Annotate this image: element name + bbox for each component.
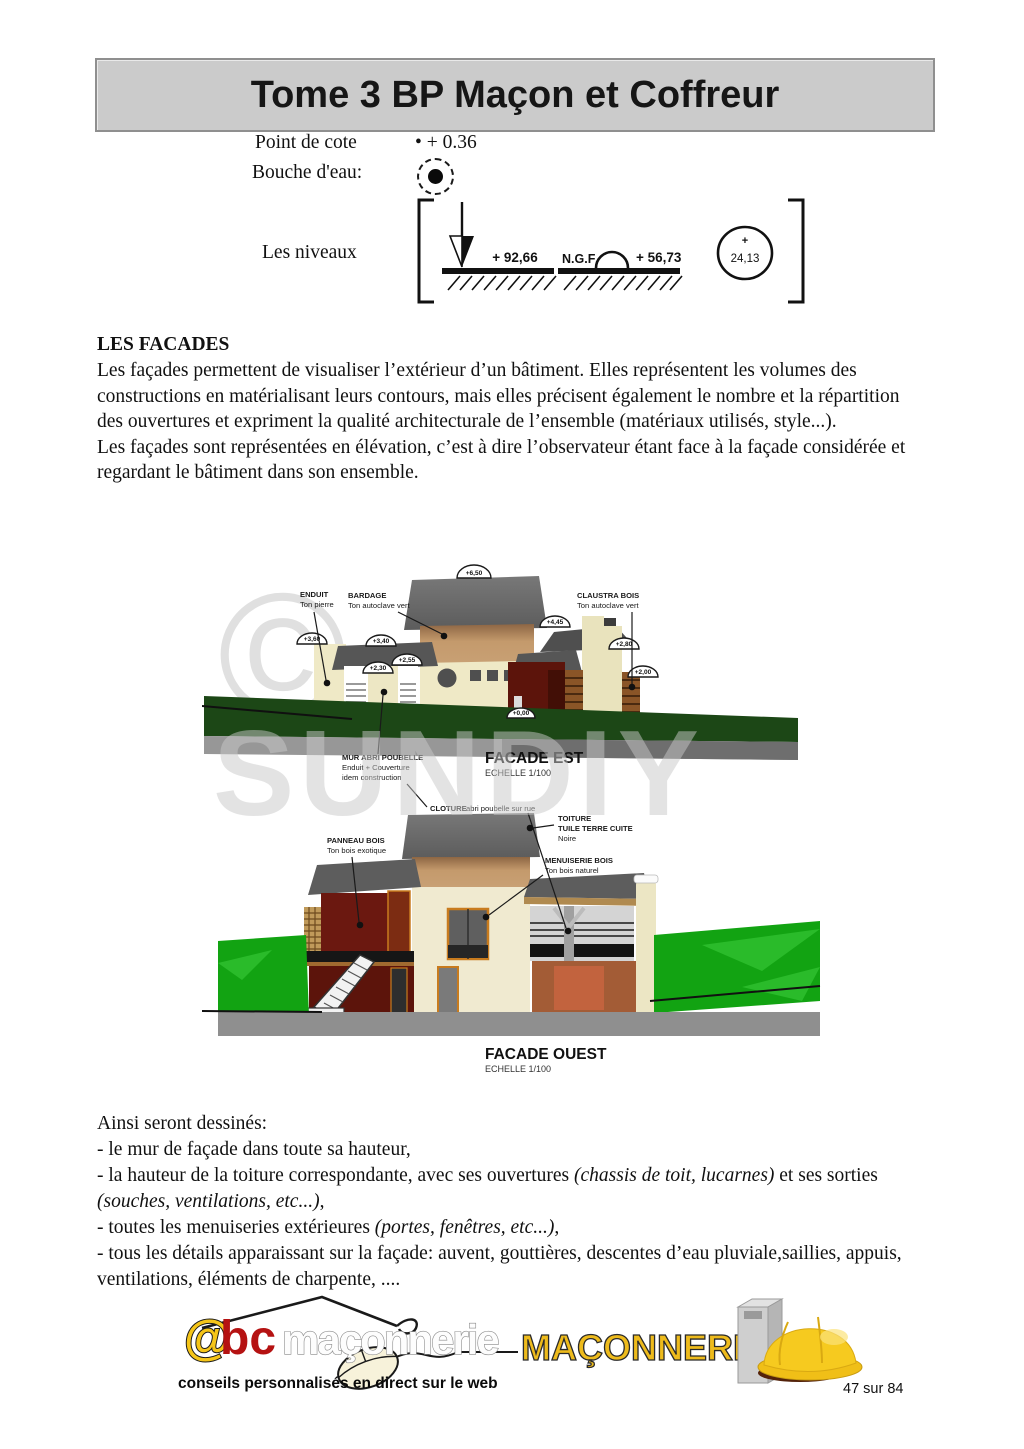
- niveau-value-3: 24,13: [731, 253, 760, 265]
- point-de-cote-value: • + 0.36: [415, 132, 477, 154]
- section-paragraphs: Les façades permettent de visualiser l’e…: [97, 358, 927, 486]
- logo-bc: bc: [220, 1312, 276, 1365]
- est-bardage: [420, 624, 534, 663]
- label-claustra: CLAUSTRA BOIS: [577, 591, 639, 600]
- page-title: Tome 3 BP Maçon et Coffreur: [251, 74, 780, 117]
- logo-tagline: conseils personnalisés en direct sur le …: [178, 1375, 498, 1392]
- svg-text:Ton autoclave vert: Ton autoclave vert: [577, 601, 640, 610]
- label-cloture: CLOTURE: [430, 804, 467, 813]
- label-panneau: PANNEAU BOIS: [327, 836, 385, 845]
- ouest-base: [218, 1012, 820, 1036]
- level-symbol-circle: + 24,13: [718, 227, 772, 279]
- ouest-pillar: [636, 879, 656, 1017]
- ngf-label: N.G.F: [562, 252, 596, 266]
- label-enduit: ENDUIT: [300, 590, 329, 599]
- level-symbol-ngf: N.G.F + 56,73: [558, 250, 682, 290]
- niveau-circle-plus: +: [742, 235, 748, 247]
- list-item: - le mur de façade dans toute sa hauteur…: [97, 1137, 931, 1163]
- hardhat-image: [722, 1285, 877, 1391]
- label-bardage: BARDAGE: [348, 591, 386, 600]
- paragraph: Les façades sont représentées en élévati…: [97, 435, 927, 486]
- elevation-marker: +3,60: [297, 633, 327, 644]
- elevation-marker: +3,40: [366, 635, 396, 646]
- list-item: - toutes les menuiseries extérieures (po…: [97, 1215, 931, 1241]
- ainsi-block: Ainsi seront dessinés: - le mur de façad…: [97, 1111, 931, 1293]
- svg-text:+2,55: +2,55: [399, 657, 416, 664]
- est-round-window: [438, 669, 457, 688]
- svg-text:Noire: Noire: [558, 834, 576, 843]
- svg-text:+6,50: +6,50: [466, 570, 483, 577]
- svg-text:Ton bois exotique: Ton bois exotique: [327, 846, 386, 855]
- ainsi-items: - le mur de façade dans toute sa hauteur…: [97, 1137, 931, 1293]
- svg-text:+2,80: +2,80: [616, 641, 633, 648]
- niveaux-drawing: + 92,66 N.G.F + 56,73 + 24,13: [412, 196, 810, 314]
- point-de-cote-label: Point de cote: [255, 132, 357, 154]
- bouche-eau-label: Bouche d'eau:: [252, 162, 362, 184]
- niveau-value-2: + 56,73: [636, 250, 682, 265]
- paragraph: Les façades permettent de visualiser l’e…: [97, 358, 927, 435]
- ouest-lattice: [304, 907, 321, 955]
- ouest-lawn-left: [218, 935, 309, 1017]
- bracket-left: [419, 200, 434, 302]
- svg-text:TUILE TERRE CUITE: TUILE TERRE CUITE: [558, 824, 633, 833]
- svg-text:+3,40: +3,40: [373, 638, 390, 645]
- bouche-eau-dot: [428, 169, 443, 184]
- title-banner: Tome 3 BP Maçon et Coffreur: [95, 58, 935, 132]
- svg-text:Ton pierre: Ton pierre: [300, 600, 334, 609]
- svg-text:abri poubelle sur rue: abri poubelle sur rue: [466, 804, 535, 813]
- svg-text:+4,45: +4,45: [547, 619, 564, 626]
- list-item: - la hauteur de la toiture correspondant…: [97, 1163, 931, 1215]
- svg-text:Ton autoclave vert: Ton autoclave vert: [348, 601, 411, 610]
- svg-text:+2,30: +2,30: [370, 665, 387, 672]
- label-mur-abri: MUR ABRI POUBELLE: [342, 753, 423, 762]
- ouest-porch-roof: [524, 873, 650, 899]
- ouest-door: [438, 967, 458, 1017]
- level-symbol-arrow: + 92,66: [442, 202, 556, 290]
- svg-text:Enduit + Couverture: Enduit + Couverture: [342, 763, 410, 772]
- svg-text:Ton bois naturel: Ton bois naturel: [545, 866, 599, 875]
- label-toiture: TOITURE: [558, 814, 591, 823]
- ouest-bardage: [412, 857, 530, 887]
- logo-name: maçonnerie: [282, 1316, 498, 1363]
- svg-text:+0,00: +0,00: [513, 710, 530, 717]
- facade-ouest-drawing: CLOTURE abri poubelle sur rue PANNEAU BO…: [202, 795, 822, 1087]
- section-heading: LES FACADES: [97, 334, 229, 356]
- ouest-left-roof: [308, 859, 421, 895]
- label-menuiserie: MENUISERIE BOIS: [545, 856, 613, 865]
- est-main-roof: [404, 576, 547, 630]
- niveau-value-1: + 92,66: [492, 250, 538, 265]
- svg-text:idem construction: idem construction: [342, 773, 402, 782]
- elevation-marker: +6,50: [457, 565, 491, 578]
- svg-text:+2,00: +2,00: [635, 669, 652, 676]
- abc-maconnerie-logo: @ bc maçonnerie conseils personnalisés e…: [172, 1288, 544, 1400]
- bracket-right: [788, 200, 803, 302]
- ouest-title: FACADE OUEST: [485, 1046, 607, 1063]
- est-scale: ECHELLE 1/100: [485, 768, 551, 778]
- bouche-eau-icon: [417, 158, 454, 195]
- ouest-main-roof: [402, 813, 540, 859]
- facade-est-drawing: +6,50 +3,60 +3,40 +2,55 +2,30 +4,45 +2,8…: [202, 560, 822, 810]
- ouest-scale: ECHELLE 1/100: [485, 1064, 551, 1074]
- page-number: 47 sur 84: [843, 1381, 903, 1397]
- est-title: FACADE EST: [485, 750, 584, 767]
- niveaux-label: Les niveaux: [262, 242, 357, 264]
- ainsi-intro: Ainsi seront dessinés:: [97, 1111, 931, 1137]
- document-page: Tome 3 BP Maçon et Coffreur Point de cot…: [0, 0, 1024, 1449]
